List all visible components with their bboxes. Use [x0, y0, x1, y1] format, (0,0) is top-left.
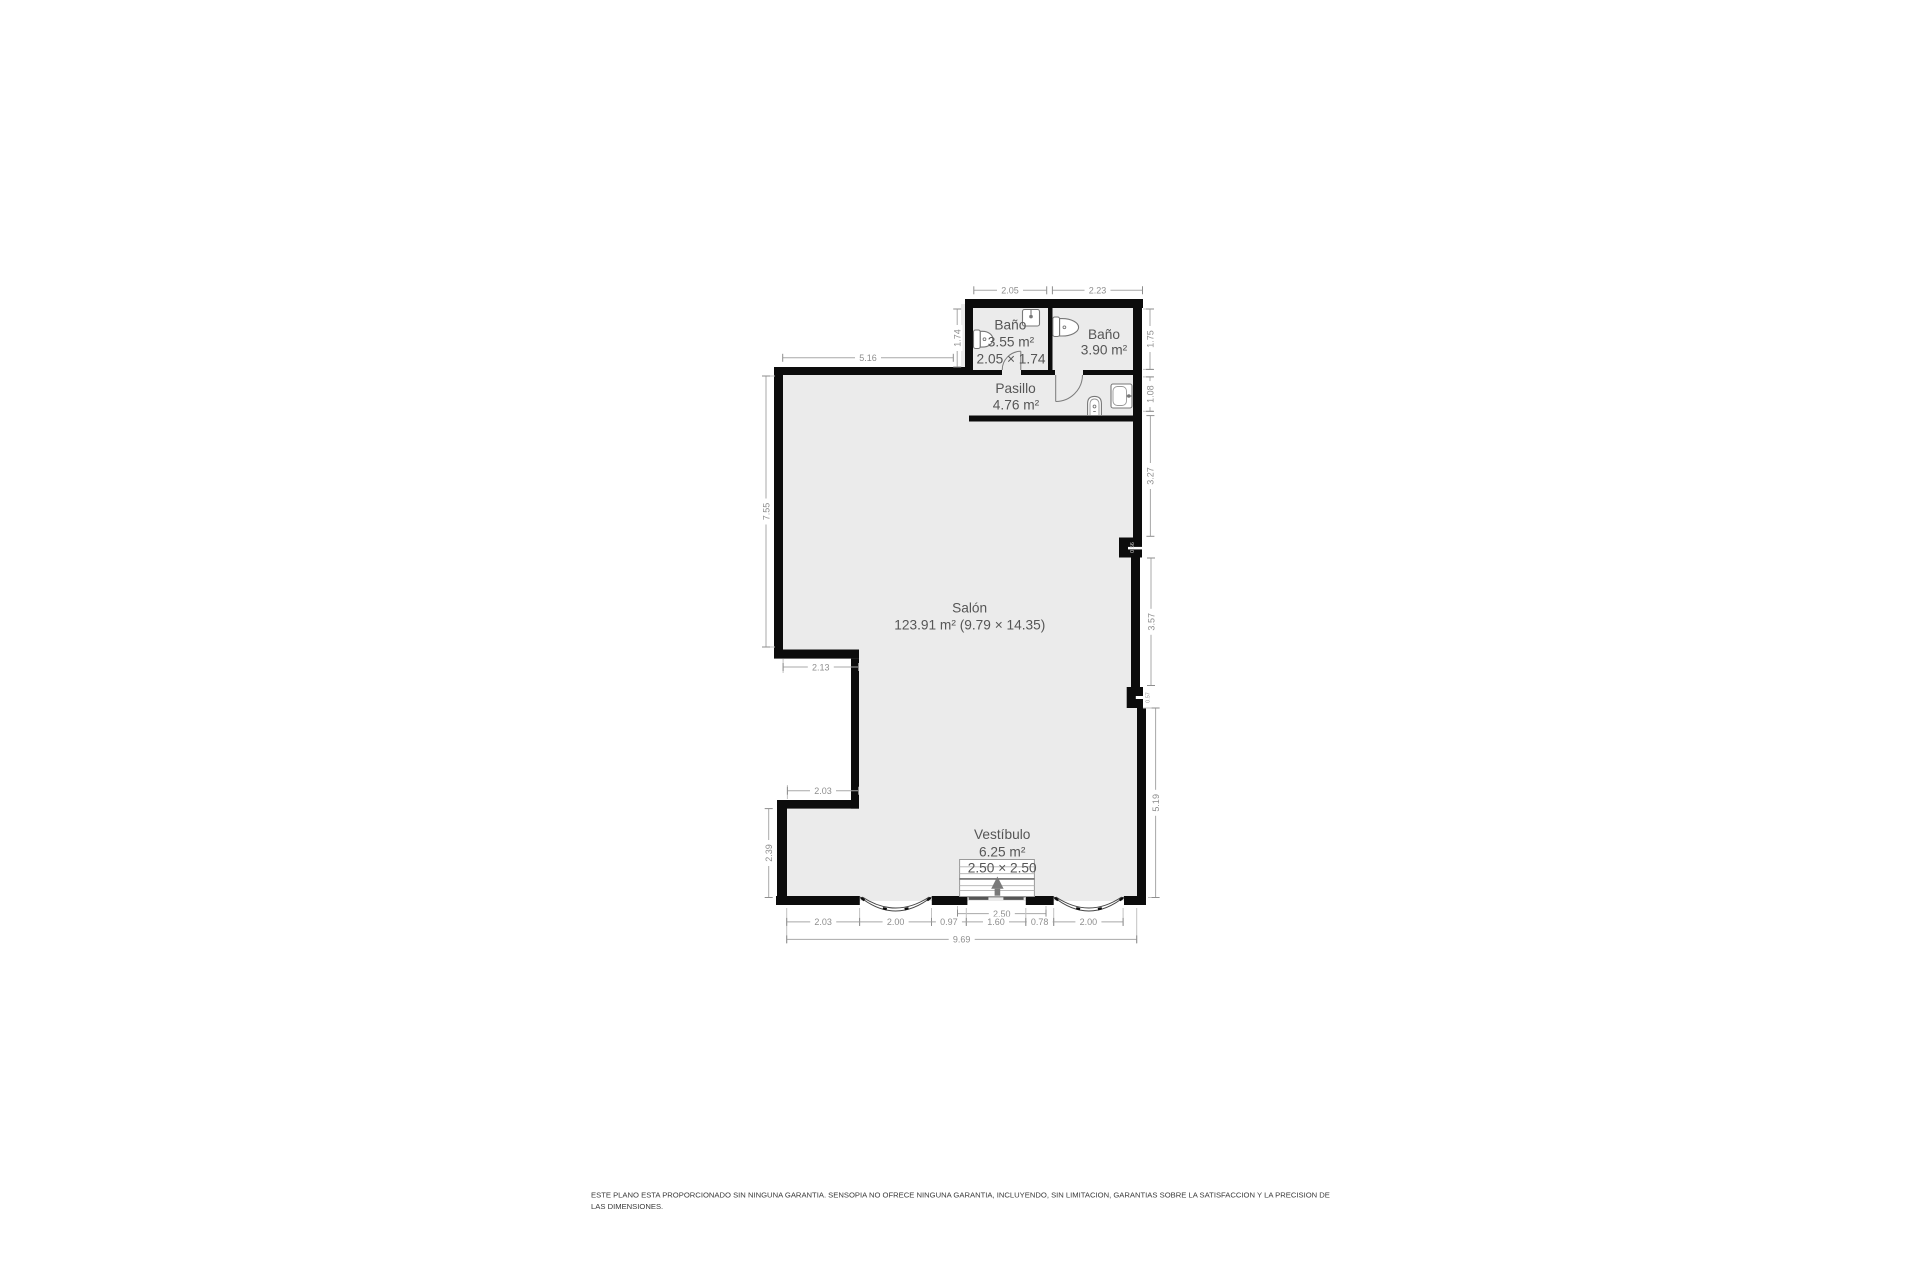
svg-text:123.91 m² (9.79 × 14.35): 123.91 m² (9.79 × 14.35)	[894, 618, 1045, 633]
svg-text:2.13: 2.13	[812, 662, 830, 672]
svg-text:3.55 m²: 3.55 m²	[988, 334, 1035, 349]
svg-text:Vestíbulo: Vestíbulo	[974, 827, 1031, 842]
svg-text:LAS DIMENSIONES.: LAS DIMENSIONES.	[591, 1202, 663, 1211]
svg-text:2.00: 2.00	[887, 917, 905, 927]
svg-text:1.08: 1.08	[1145, 385, 1155, 403]
svg-text:2.05: 2.05	[1001, 286, 1019, 296]
svg-text:2.03: 2.03	[814, 917, 832, 927]
svg-text:2.05 × 1.74: 2.05 × 1.74	[977, 351, 1046, 366]
svg-text:9.69: 9.69	[953, 935, 971, 945]
svg-text:0.97: 0.97	[940, 917, 958, 927]
svg-text:0.78: 0.78	[1031, 917, 1049, 927]
svg-text:3.57: 3.57	[1146, 613, 1156, 631]
svg-text:5.19: 5.19	[1151, 794, 1161, 812]
svg-text:2.50 × 2.50: 2.50 × 2.50	[968, 860, 1037, 875]
svg-text:7.55: 7.55	[761, 503, 771, 521]
svg-text:ESTE PLANO ESTA PROPORCIONADO: ESTE PLANO ESTA PROPORCIONADO SIN NINGUN…	[591, 1191, 1330, 1200]
svg-text:3.27: 3.27	[1146, 467, 1156, 485]
svg-text:Baño: Baño	[1088, 327, 1120, 342]
svg-text:1.60: 1.60	[987, 917, 1005, 927]
svg-text:1.75: 1.75	[1145, 330, 1155, 348]
svg-text:Pasillo: Pasillo	[995, 381, 1036, 396]
svg-text:0.56: 0.56	[1130, 542, 1136, 553]
svg-text:Baño: Baño	[994, 317, 1026, 332]
svg-text:Salón: Salón	[952, 601, 987, 616]
svg-text:2.03: 2.03	[814, 786, 832, 796]
svg-text:2.39: 2.39	[764, 844, 774, 862]
svg-text:4.76 m²: 4.76 m²	[993, 397, 1040, 412]
svg-text:2.23: 2.23	[1089, 286, 1107, 296]
svg-text:5.16: 5.16	[859, 353, 877, 363]
svg-text:1.74: 1.74	[953, 329, 963, 347]
svg-text:0.57: 0.57	[1146, 692, 1152, 703]
svg-text:3.90 m²: 3.90 m²	[1081, 343, 1128, 358]
svg-text:6.25 m²: 6.25 m²	[979, 845, 1026, 860]
svg-text:2.00: 2.00	[1080, 917, 1098, 927]
